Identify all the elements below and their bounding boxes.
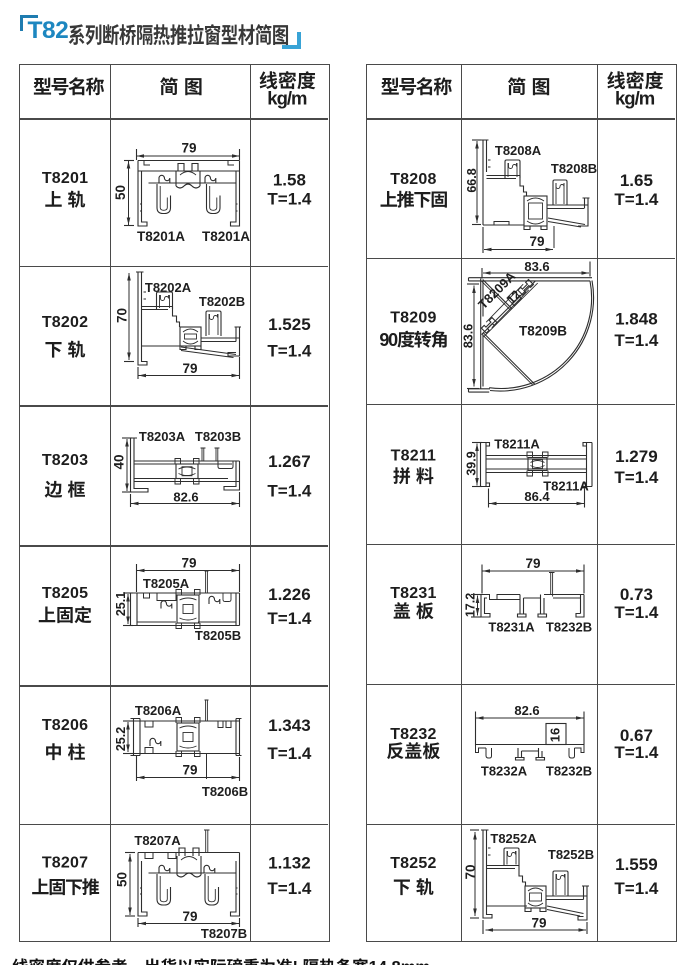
svg-text:1.58: 1.58 [273,170,306,189]
svg-text:79: 79 [181,556,196,571]
svg-text:T8205B: T8205B [195,628,241,643]
svg-text:T=1.4: T=1.4 [614,468,658,487]
svg-text:T=1.4: T=1.4 [267,189,311,208]
svg-text:T=1.4: T=1.4 [614,603,658,622]
svg-text:上固定: 上固定 [38,602,92,628]
svg-text:T8232A: T8232A [481,763,528,778]
svg-text:上 轨: 上 轨 [44,186,85,212]
svg-text:16: 16 [548,727,563,741]
svg-text:T8207A: T8207A [134,833,181,848]
svg-text:1.65: 1.65 [620,171,653,190]
svg-text:T=1.4: T=1.4 [267,609,311,628]
svg-text:T8208A: T8208A [495,143,542,158]
svg-text:T8201: T8201 [42,170,88,187]
svg-text:70: 70 [463,864,478,879]
svg-text:90度转角: 90度转角 [379,326,447,352]
svg-text:T8209: T8209 [390,309,436,326]
svg-text:79: 79 [181,141,196,156]
svg-text:1.267: 1.267 [268,452,311,471]
svg-text:17.2: 17.2 [464,592,478,616]
svg-text:下 轨: 下 轨 [393,874,434,900]
svg-text:盖 板: 盖 板 [393,598,434,624]
svg-text:T=1.4: T=1.4 [267,744,311,763]
svg-text:83.6: 83.6 [462,323,476,347]
svg-text:反盖板: 反盖板 [386,738,440,764]
svg-text:40: 40 [112,454,127,469]
svg-text:线密度仅供参考，出货以实际磅重为准! 隔热条宽14.8mm: 线密度仅供参考，出货以实际磅重为准! 隔热条宽14.8mm [12,953,430,965]
svg-text:T8202A: T8202A [145,280,192,295]
svg-text:50: 50 [113,185,128,200]
svg-text:T8201A: T8201A [202,229,250,244]
svg-text:T=1.4: T=1.4 [614,743,658,762]
svg-text:边 框: 边 框 [44,476,85,502]
svg-text:79: 79 [525,556,540,571]
svg-text:T8205A: T8205A [143,576,190,591]
svg-text:型号名称: 型号名称 [381,73,453,100]
svg-text:70: 70 [115,308,130,323]
svg-text:T8252A: T8252A [490,831,537,846]
svg-text:T8211A: T8211A [543,478,589,493]
svg-text:T8232B: T8232B [546,619,592,634]
svg-text:1.343: 1.343 [268,716,311,735]
svg-text:T8202B: T8202B [199,294,245,309]
svg-text:T8203: T8203 [42,452,88,469]
svg-text:T=1.4: T=1.4 [614,879,658,898]
svg-text:79: 79 [531,916,546,931]
svg-text:T8208B: T8208B [551,161,597,176]
svg-text:1.132: 1.132 [268,854,311,873]
svg-text:T8206A: T8206A [135,703,182,718]
svg-text:kg/m: kg/m [267,87,307,108]
svg-text:型号名称: 型号名称 [33,73,105,100]
svg-text:T8202: T8202 [42,314,88,331]
svg-text:79: 79 [182,763,197,778]
svg-text:82.6: 82.6 [173,490,198,505]
svg-text:T=1.4: T=1.4 [614,190,658,209]
svg-text:拼 料: 拼 料 [393,463,434,489]
svg-text:1.525: 1.525 [268,315,311,334]
svg-text:T8207B: T8207B [201,926,247,941]
svg-text:T8206B: T8206B [202,784,248,799]
svg-text:1.226: 1.226 [268,585,311,604]
svg-text:中 柱: 中 柱 [44,739,85,765]
svg-text:T=1.4: T=1.4 [267,482,311,501]
svg-text:T8201A: T8201A [137,229,185,244]
svg-text:86.4: 86.4 [524,489,550,504]
svg-text:25.2: 25.2 [114,727,128,751]
svg-text:下 轨: 下 轨 [44,336,85,362]
svg-text:kg/m: kg/m [615,87,655,108]
svg-text:79: 79 [182,909,197,924]
svg-text:简 图: 简 图 [507,73,550,100]
svg-text:25.1: 25.1 [114,592,128,616]
svg-text:82.6: 82.6 [514,703,539,718]
svg-text:T8206: T8206 [42,717,88,734]
svg-text:T8232B: T8232B [546,763,592,778]
svg-text:T=1.4: T=1.4 [267,342,311,361]
svg-text:39.9: 39.9 [465,451,479,475]
svg-text:T8252B: T8252B [548,847,594,862]
svg-text:T8203B: T8203B [195,429,241,444]
svg-text:T8231A: T8231A [488,619,535,634]
svg-text:T=1.4: T=1.4 [614,331,658,350]
svg-text:79: 79 [182,361,197,376]
svg-text:79: 79 [529,234,544,249]
svg-text:50: 50 [115,872,130,887]
svg-text:83.6: 83.6 [524,260,549,274]
svg-text:T8207: T8207 [42,855,88,872]
svg-text:1.559: 1.559 [615,855,658,874]
svg-text:0.73: 0.73 [620,585,653,604]
svg-text:T8211A: T8211A [494,436,540,451]
svg-text:上固下推: 上固下推 [31,874,99,900]
svg-text:T=1.4: T=1.4 [267,879,311,898]
svg-text:上推下固: 上推下固 [380,186,447,212]
svg-text:简 图: 简 图 [160,73,203,100]
svg-text:1.848: 1.848 [615,309,658,328]
svg-text:T8252: T8252 [390,855,436,872]
svg-text:T8209B: T8209B [519,323,567,338]
svg-text:T8205: T8205 [42,585,88,602]
svg-text:T8203A: T8203A [139,429,186,444]
svg-text:1.279: 1.279 [615,447,658,466]
